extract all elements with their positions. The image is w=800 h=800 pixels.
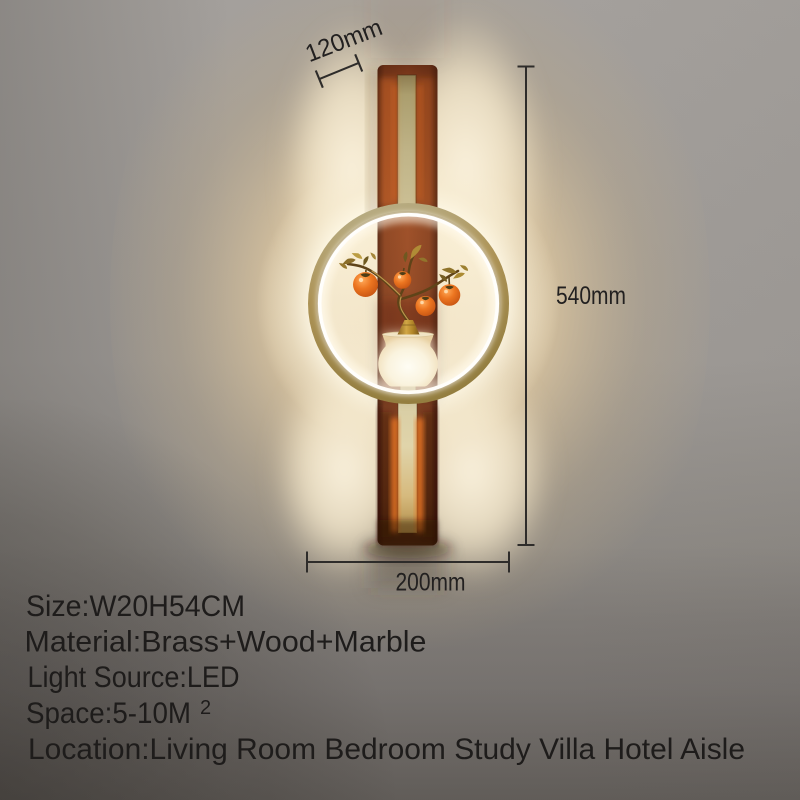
svg-text:Location:Living Room Bedroom S: Location:Living Room Bedroom Study Villa… <box>28 733 745 766</box>
svg-text:Light Source:LED: Light Source:LED <box>28 661 240 694</box>
svg-text:Space:5-10M: Space:5-10M <box>26 697 191 730</box>
svg-text:540mm: 540mm <box>556 282 626 310</box>
svg-text:Size:W20H54CM: Size:W20H54CM <box>26 590 245 623</box>
svg-text:200mm: 200mm <box>396 569 466 597</box>
svg-text:Material:Brass+Wood+Marble: Material:Brass+Wood+Marble <box>25 626 427 659</box>
svg-text:2: 2 <box>200 697 211 719</box>
